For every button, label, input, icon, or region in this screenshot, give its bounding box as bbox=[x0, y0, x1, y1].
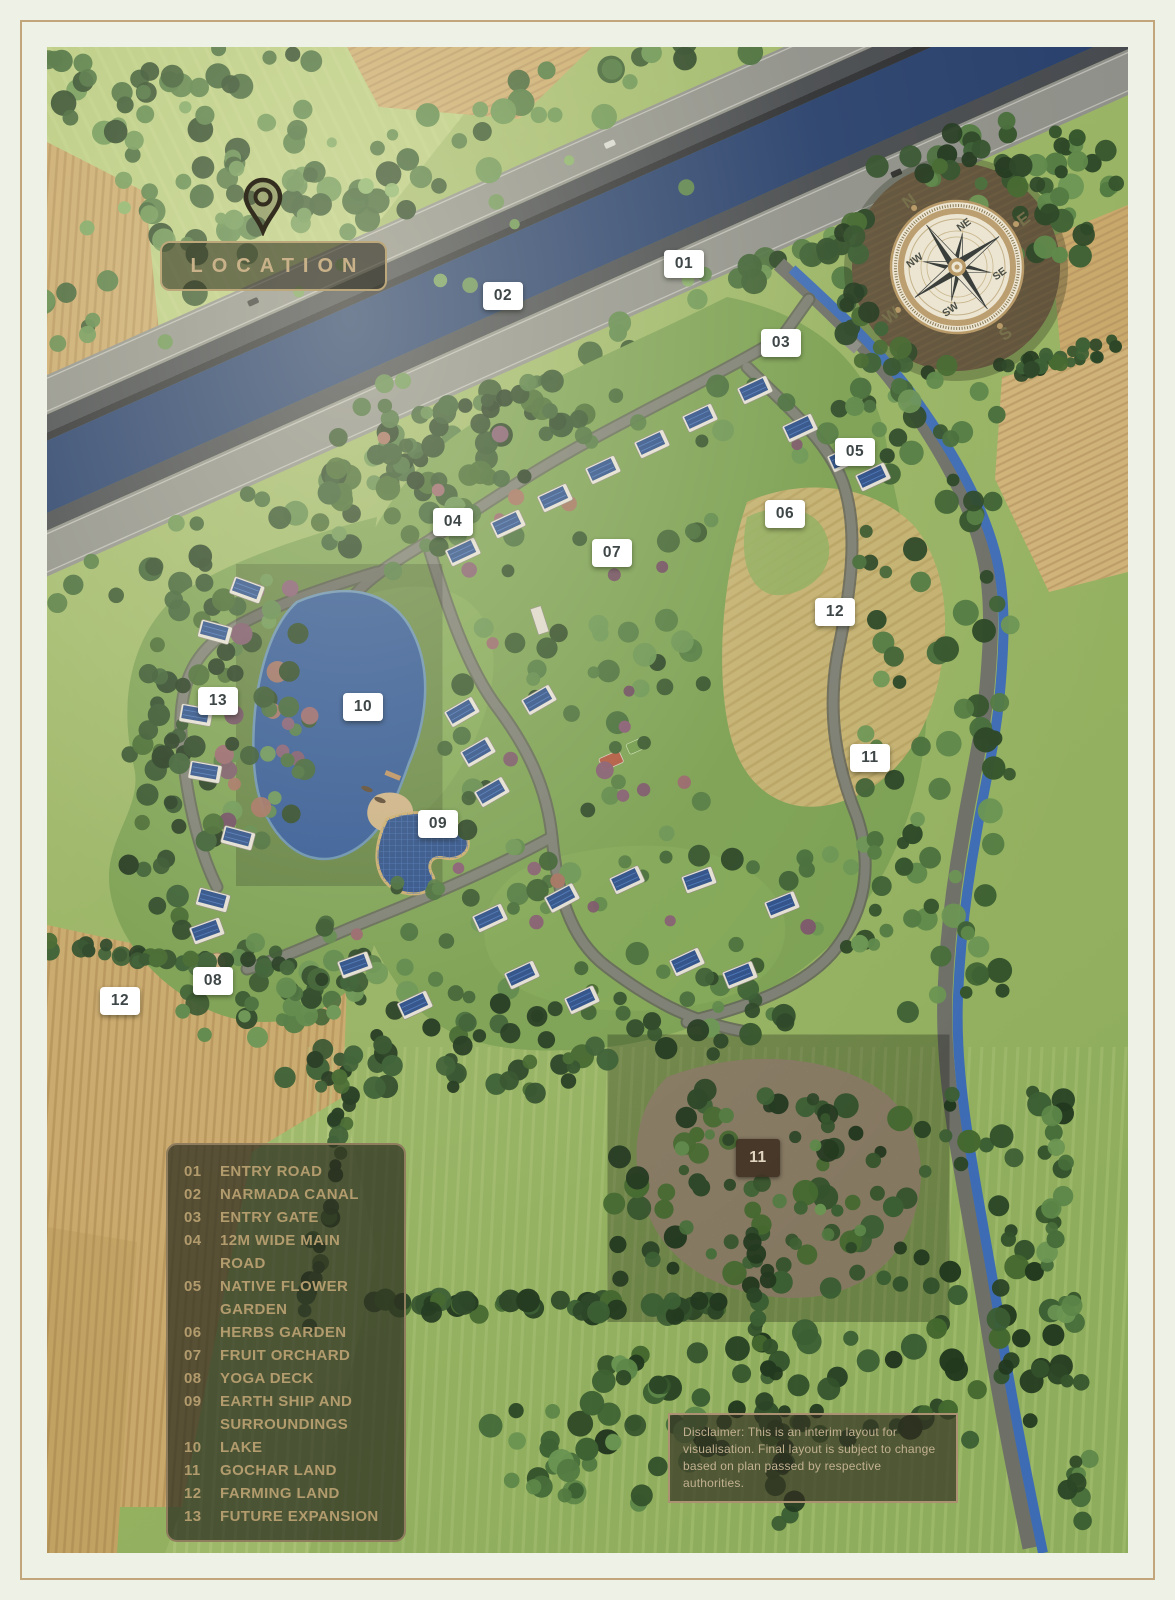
legend-item-01: 01ENTRY ROAD bbox=[184, 1160, 390, 1183]
legend-item-label: FUTURE EXPANSION bbox=[220, 1505, 390, 1528]
legend-item-label: YOGA DECK bbox=[220, 1367, 390, 1390]
legend-item-label: FRUIT ORCHARD bbox=[220, 1344, 390, 1367]
legend-item-number: 05 bbox=[184, 1275, 220, 1298]
map-marker-11: 11 bbox=[736, 1139, 780, 1177]
legend-item-label: EARTH SHIP AND SURROUNDINGS bbox=[220, 1390, 390, 1436]
legend-item-number: 13 bbox=[184, 1505, 220, 1528]
map-marker-09: 09 bbox=[418, 810, 458, 838]
legend-item-label: ENTRY GATE bbox=[220, 1206, 390, 1229]
disclaimer-text: Disclaimer: This is an interim layout fo… bbox=[683, 1425, 935, 1490]
disclaimer-box: Disclaimer: This is an interim layout fo… bbox=[668, 1413, 958, 1503]
legend-item-label: GOCHAR LAND bbox=[220, 1459, 390, 1482]
map-marker-06: 06 bbox=[765, 500, 805, 528]
brochure-page: LOCATION NESWNESESWNW 010203040506071213… bbox=[0, 0, 1175, 1600]
legend-item-07: 07FRUIT ORCHARD bbox=[184, 1344, 390, 1367]
map-marker-05: 05 bbox=[835, 438, 875, 466]
legend-item-03: 03ENTRY GATE bbox=[184, 1206, 390, 1229]
legend-item-number: 06 bbox=[184, 1321, 220, 1344]
map-marker-03: 03 bbox=[761, 329, 801, 357]
legend-item-number: 10 bbox=[184, 1436, 220, 1459]
map-marker-01: 01 bbox=[664, 250, 704, 278]
map-marker-11: 11 bbox=[850, 744, 890, 772]
map-marker-04: 04 bbox=[433, 508, 473, 536]
legend-item-06: 06HERBS GARDEN bbox=[184, 1321, 390, 1344]
legend-item-number: 04 bbox=[184, 1229, 220, 1252]
legend-item-13: 13FUTURE EXPANSION bbox=[184, 1505, 390, 1528]
location-pin-icon bbox=[240, 176, 286, 236]
legend-item-number: 09 bbox=[184, 1390, 220, 1413]
map-marker-13: 13 bbox=[198, 687, 238, 715]
map-marker-07: 07 bbox=[592, 539, 632, 567]
legend-item-number: 08 bbox=[184, 1367, 220, 1390]
location-title: LOCATION bbox=[182, 255, 366, 278]
legend-item-number: 01 bbox=[184, 1160, 220, 1183]
legend-item-number: 11 bbox=[184, 1459, 220, 1482]
legend-item-02: 02NARMADA CANAL bbox=[184, 1183, 390, 1206]
legend-item-label: LAKE bbox=[220, 1436, 390, 1459]
legend-item-11: 11GOCHAR LAND bbox=[184, 1459, 390, 1482]
map-marker-02: 02 bbox=[483, 282, 523, 310]
map-marker-12: 12 bbox=[815, 598, 855, 626]
legend-item-label: NARMADA CANAL bbox=[220, 1183, 390, 1206]
legend-item-label: 12M WIDE MAIN ROAD bbox=[220, 1229, 390, 1275]
compass-rose: NESWNESESWNW bbox=[845, 155, 1069, 379]
compass-cardinal-W: W bbox=[879, 303, 904, 328]
legend-item-number: 02 bbox=[184, 1183, 220, 1206]
legend-item-label: NATIVE FLOWER GARDEN bbox=[220, 1275, 390, 1321]
legend-item-05: 05NATIVE FLOWER GARDEN bbox=[184, 1275, 390, 1321]
legend-item-label: FARMING LAND bbox=[220, 1482, 390, 1505]
legend-item-08: 08YOGA DECK bbox=[184, 1367, 390, 1390]
legend-item-number: 12 bbox=[184, 1482, 220, 1505]
legend-item-label: ENTRY ROAD bbox=[220, 1160, 390, 1183]
legend-item-number: 03 bbox=[184, 1206, 220, 1229]
map-marker-08: 08 bbox=[193, 967, 233, 995]
legend-item-label: HERBS GARDEN bbox=[220, 1321, 390, 1344]
legend-item-12: 12FARMING LAND bbox=[184, 1482, 390, 1505]
compass-cardinal-S: S bbox=[995, 323, 1015, 345]
legend-item-number: 07 bbox=[184, 1344, 220, 1367]
legend-item-10: 10LAKE bbox=[184, 1436, 390, 1459]
map-legend: 01ENTRY ROAD02NARMADA CANAL03ENTRY GATE0… bbox=[166, 1143, 406, 1542]
map-marker-10: 10 bbox=[343, 693, 383, 721]
map-marker-12: 12 bbox=[100, 987, 140, 1015]
legend-item-04: 0412M WIDE MAIN ROAD bbox=[184, 1229, 390, 1275]
legend-item-09: 09EARTH SHIP AND SURROUNDINGS bbox=[184, 1390, 390, 1436]
location-title-box: LOCATION bbox=[160, 241, 387, 291]
